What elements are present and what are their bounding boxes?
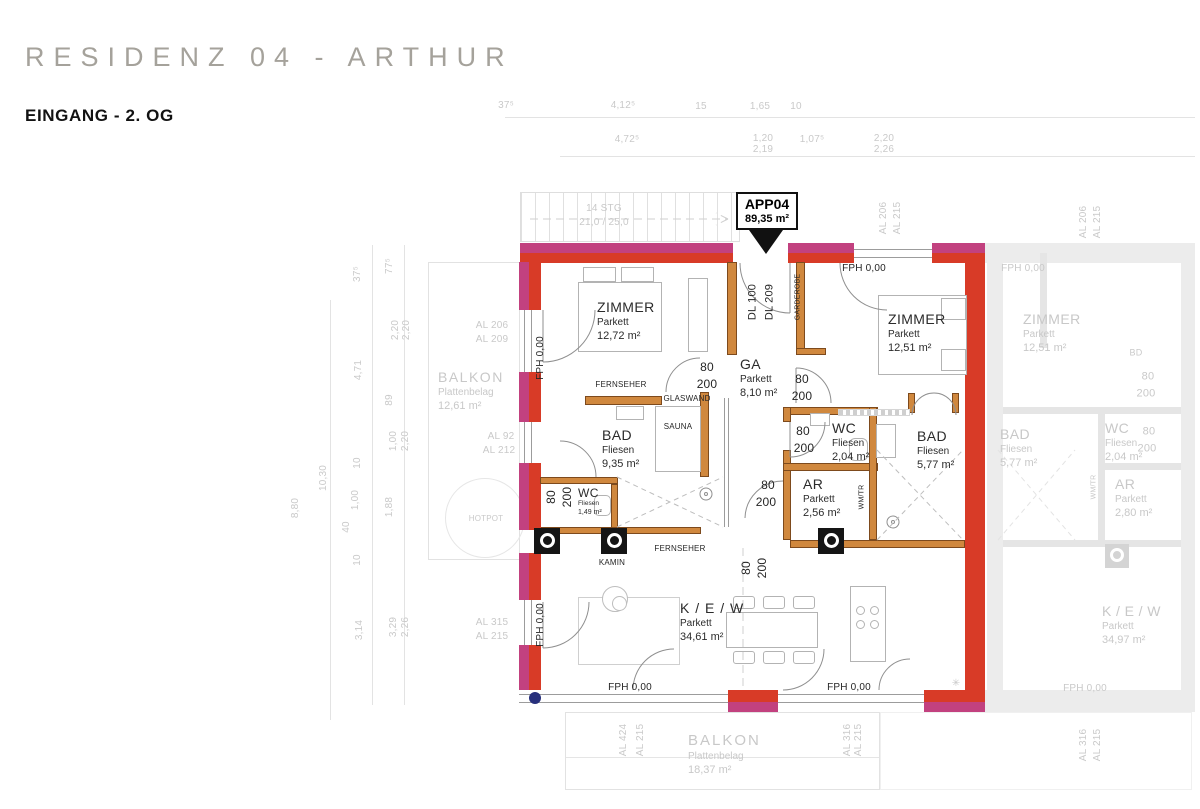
room-floor: Plattenbelag [438,388,504,398]
room-area: 2,04 m² [832,452,869,463]
shower-fixture [876,424,896,458]
dim-label: 10 [353,554,363,566]
exterior-wall [519,463,529,530]
door-size-label: 80 [700,361,714,373]
door-size-label: 200 [697,378,718,390]
interior-wall [783,463,878,471]
fph-label: FPH 0,00 [536,336,546,380]
interior-wall [727,262,737,355]
feature-label-fernseher-2: FERNSEHER [654,545,705,553]
al-ref-label: AL 215 [854,724,864,757]
room-area: 12,51 m² [1023,343,1081,354]
room-name: ZIMMER [597,300,655,314]
dim-label: 1,07⁵ [800,135,825,145]
exterior-wall [519,553,529,600]
door-size-label: 80 [796,425,810,437]
room-name: ZIMMER [888,312,946,326]
room-label-ga: GA Parkett 8,10 m² [740,357,777,399]
dim-label: 37⁵ [498,101,514,111]
rug [578,597,680,665]
window [854,249,932,258]
room-floor: Parkett [1115,495,1152,505]
room-label-balkon-left: BALKON Plattenbelag 12,61 m² [438,370,504,412]
window [778,694,924,703]
apartment-id: APP04 [738,196,796,212]
door-post [952,393,959,413]
exterior-wall [519,372,529,422]
dim-label: 2,20 [874,134,894,144]
dim-label: 1,00 [389,431,399,451]
fph-label: FPH 0,00 [827,683,871,693]
room-area: 1,49 m² [578,509,602,516]
room-area: 2,80 m² [1115,508,1152,519]
room-area: 2,56 m² [803,508,840,519]
room-area: 12,51 m² [888,343,946,354]
dim-label: 2,26 [401,617,411,637]
room-floor: Parkett [1102,622,1161,632]
room-name: K / E / W [1102,604,1161,618]
room-name: GA [740,357,777,371]
room-label-kew: K / E / W Parkett 34,61 m² [680,601,744,643]
light-partition-wall [838,409,910,416]
room-area: 8,10 m² [740,388,777,399]
room-area: 5,77 m² [917,460,954,471]
entry-door-label: DL 209 [765,284,776,320]
room-floor: Fliesen [602,446,639,456]
al-ref-label: AL 92 [488,432,515,442]
window [541,694,728,703]
fph-label: FPH 0,00 [842,264,886,274]
room-floor: Parkett [597,318,655,328]
exterior-wall [529,262,541,310]
fph-label: FPH 0,00 [1001,264,1045,274]
dim-label: 4,72⁵ [615,135,640,145]
interior-wall [790,540,965,548]
party-wall [965,263,985,710]
room-area: 5,77 m² [1000,458,1037,469]
staircase [520,192,740,242]
room-area: 18,37 m² [688,765,761,776]
apartment-badge: APP04 89,35 m² [736,192,798,230]
door-size-label: 80 [740,561,752,575]
dimension-line [372,245,373,705]
exterior-wall [520,253,733,263]
cooktop-burner [856,606,865,615]
room-area: 12,72 m² [597,331,655,342]
feature-label-wm-tr: WM/TR [1091,475,1098,500]
dim-label: 1,65 [750,102,770,112]
interior-wall [540,477,618,484]
door-size-label: 200 [756,558,768,579]
entry-door-label: DL 100 [748,284,759,320]
dim-label: 10 [353,457,363,469]
room-area: 34,61 m² [680,632,744,643]
al-ref-label: AL 206 [1079,206,1089,239]
dim-label: 10 [790,102,802,112]
chair [733,651,755,664]
room-label-faded-ar: AR Parkett 2,80 m² [1115,477,1152,519]
room-label-ar: AR Parkett 2,56 m² [803,477,840,519]
room-name: WC [578,487,602,499]
chair [763,596,785,609]
room-area: 12,61 m² [438,401,504,412]
feature-label-fernseher: FERNSEHER [595,381,646,389]
door-size-label: 200 [794,442,815,454]
door-size-label: 200 [1138,444,1157,455]
al-ref-label: AL 209 [476,335,509,345]
interior-wall [700,392,709,477]
feature-label-sauna: SAUNA [664,423,693,431]
dimension-line [330,300,331,720]
dim-label: 2,19 [753,145,773,155]
exterior-wall [529,553,541,600]
chair [763,651,785,664]
exterior-wall [529,645,541,690]
room-floor: Plattenbelag [688,752,761,762]
fph-label: FPH 0,00 [1063,684,1107,694]
exterior-wall [788,243,854,253]
faded-flue-box [1105,544,1129,568]
al-ref-label: AL 316 [843,724,853,757]
exterior-wall [728,690,778,702]
dim-label: 40 [342,521,352,533]
room-label-zimmer-2: ZIMMER Parkett 12,51 m² [888,312,946,354]
al-ref-label: AL 206 [879,202,889,235]
stairs-label: 14 STG [586,204,622,214]
interior-wall [783,407,791,422]
room-floor: Fliesen [832,439,869,449]
room-floor: Fliesen [578,501,602,508]
room-floor: Parkett [740,375,777,385]
wardrobe [688,278,708,352]
cooktop-burner [870,606,879,615]
dim-label: 2,20 [391,320,401,340]
room-label-faded-kew: K / E / W Parkett 34,97 m² [1102,604,1161,646]
faded-wall [1181,243,1195,712]
feature-label-bd: BD [1130,349,1143,358]
dim-label: 89 [385,394,395,406]
exterior-wall [932,243,985,253]
fph-label: FPH 0,00 [536,603,546,647]
dim-label: 2,26 [874,145,894,155]
room-floor: Parkett [888,330,946,340]
al-ref-label: AL 424 [619,724,629,757]
door-size-label: 200 [561,487,573,508]
room-name: BAD [917,429,954,443]
al-ref-label: AL 206 [476,321,509,331]
feature-label-hotpot: HOTPOT [469,515,504,523]
chimney-box [601,528,627,554]
al-ref-label: AL 215 [893,202,903,235]
pillow [621,267,654,282]
room-label-bad-1: BAD Fliesen 9,35 m² [602,428,639,470]
cooktop-burner [856,620,865,629]
chair [793,596,815,609]
chair [793,651,815,664]
dim-label: 37⁵ [353,266,363,282]
dim-label: 1,88 [385,497,395,517]
dim-label: 15 [695,102,707,112]
survey-point [529,692,541,704]
exterior-wall [924,690,985,702]
glass-wall [724,398,729,527]
faded-wall [1003,407,1181,414]
room-label-wc-1: WC Fliesen 1,49 m² [578,487,602,516]
chimney-box [534,528,560,554]
room-name: AR [803,477,840,491]
room-name: BALKON [688,733,761,748]
exterior-wall [728,702,778,712]
door-size-label: 200 [792,390,813,402]
window [524,600,532,645]
washbasin [616,406,644,420]
exterior-wall [924,702,985,712]
exterior-wall [529,463,541,530]
feature-label-kamin: KAMIN [599,559,625,567]
room-name: K / E / W [680,601,744,615]
dim-label: 1,00 [351,490,361,510]
page-title: RESIDENZ 04 - ARTHUR [25,42,514,73]
dim-label: 1,20 [753,134,773,144]
page-subtitle: EINGANG - 2. OG [25,106,174,126]
al-ref-label: AL 215 [1093,206,1103,239]
dim-label: 3,29 [389,617,399,637]
interior-wall [585,396,662,405]
pillow [583,267,616,282]
room-label-balkon-bottom: BALKON Plattenbelag 18,37 m² [688,733,761,776]
al-ref-label: AL 212 [483,446,516,456]
dim-label: 2,20 [402,320,412,340]
dim-label: 2,20 [401,431,411,451]
dim-label: 3,14 [355,620,365,640]
room-floor: Fliesen [917,447,954,457]
door-size-label: 80 [545,490,557,504]
faded-wall [1098,407,1105,540]
door-size-label: 200 [1137,389,1156,400]
door-size-label: 80 [761,479,775,491]
washbasin [810,413,830,426]
room-name: BAD [1000,427,1037,441]
feature-label-wm-tr: WM/TR [859,485,866,510]
room-floor: Parkett [680,619,744,629]
window [524,310,532,372]
apartment-area: 89,35 m² [738,213,796,225]
balcony-bottom-right-outline [880,712,1192,790]
room-name: WC [1105,421,1142,435]
star-symbol: ✳ [952,679,961,689]
cooktop-burner [870,620,879,629]
dimension-line [560,156,1195,157]
faded-wall [1098,463,1181,470]
exterior-wall [519,262,529,310]
room-label-bad-2: BAD Fliesen 5,77 m² [917,429,954,471]
window [524,422,532,463]
room-area: 34,97 m² [1102,635,1161,646]
flue-box [818,528,844,554]
door-size-label: 200 [756,496,777,508]
exterior-wall [932,253,985,263]
room-name: AR [1115,477,1152,491]
room-label-wc-2: WC Fliesen 2,04 m² [832,421,869,463]
door-size-label: 80 [795,373,809,385]
faded-wall [1003,540,1181,547]
al-ref-label: AL 215 [1093,729,1103,762]
room-name: WC [832,421,869,435]
dim-label: 4,71 [354,360,364,380]
room-label-zimmer-1: ZIMMER Parkett 12,72 m² [597,300,655,342]
door-size-label: 80 [1143,427,1156,438]
faded-wall [985,243,1192,263]
exterior-wall [520,243,733,253]
feature-label-garderobe: GARDEROBE [795,274,802,321]
exterior-wall [519,645,529,690]
dim-label: 77⁵ [385,258,395,274]
feature-label-glaswand: GLASWAND [663,395,710,403]
sauna-cabin [655,406,701,472]
entry-arrow-icon [749,230,783,254]
room-label-faded-zimmer: ZIMMER Parkett 12,51 m² [1023,312,1081,354]
room-floor: Parkett [803,495,840,505]
dim-label: 4,12⁵ [611,101,636,111]
armchair-person [612,596,627,611]
room-name: BAD [602,428,639,442]
stairs-label: 21,0 / 25,0 [579,218,628,228]
al-ref-label: AL 315 [476,618,509,628]
dim-label: 8,80 [291,498,301,518]
interior-wall [796,348,826,355]
al-ref-label: AL 316 [1079,729,1089,762]
al-ref-label: AL 215 [476,632,509,642]
room-name: BALKON [438,370,504,384]
interior-wall [611,484,618,530]
dimension-line [505,117,1195,118]
room-area: 9,35 m² [602,459,639,470]
faded-wall [987,263,1003,710]
al-ref-label: AL 215 [636,724,646,757]
fph-label: FPH 0,00 [608,683,652,693]
room-label-faded-bad: BAD Fliesen 5,77 m² [1000,427,1037,469]
room-floor: Parkett [1023,330,1081,340]
door-size-label: 80 [1142,372,1155,383]
dim-label: 10,30 [319,465,329,491]
floor-plan-page: RESIDENZ 04 - ARTHUR EINGANG - 2. OG [0,0,1200,809]
room-floor: Fliesen [1000,445,1037,455]
room-name: ZIMMER [1023,312,1081,326]
